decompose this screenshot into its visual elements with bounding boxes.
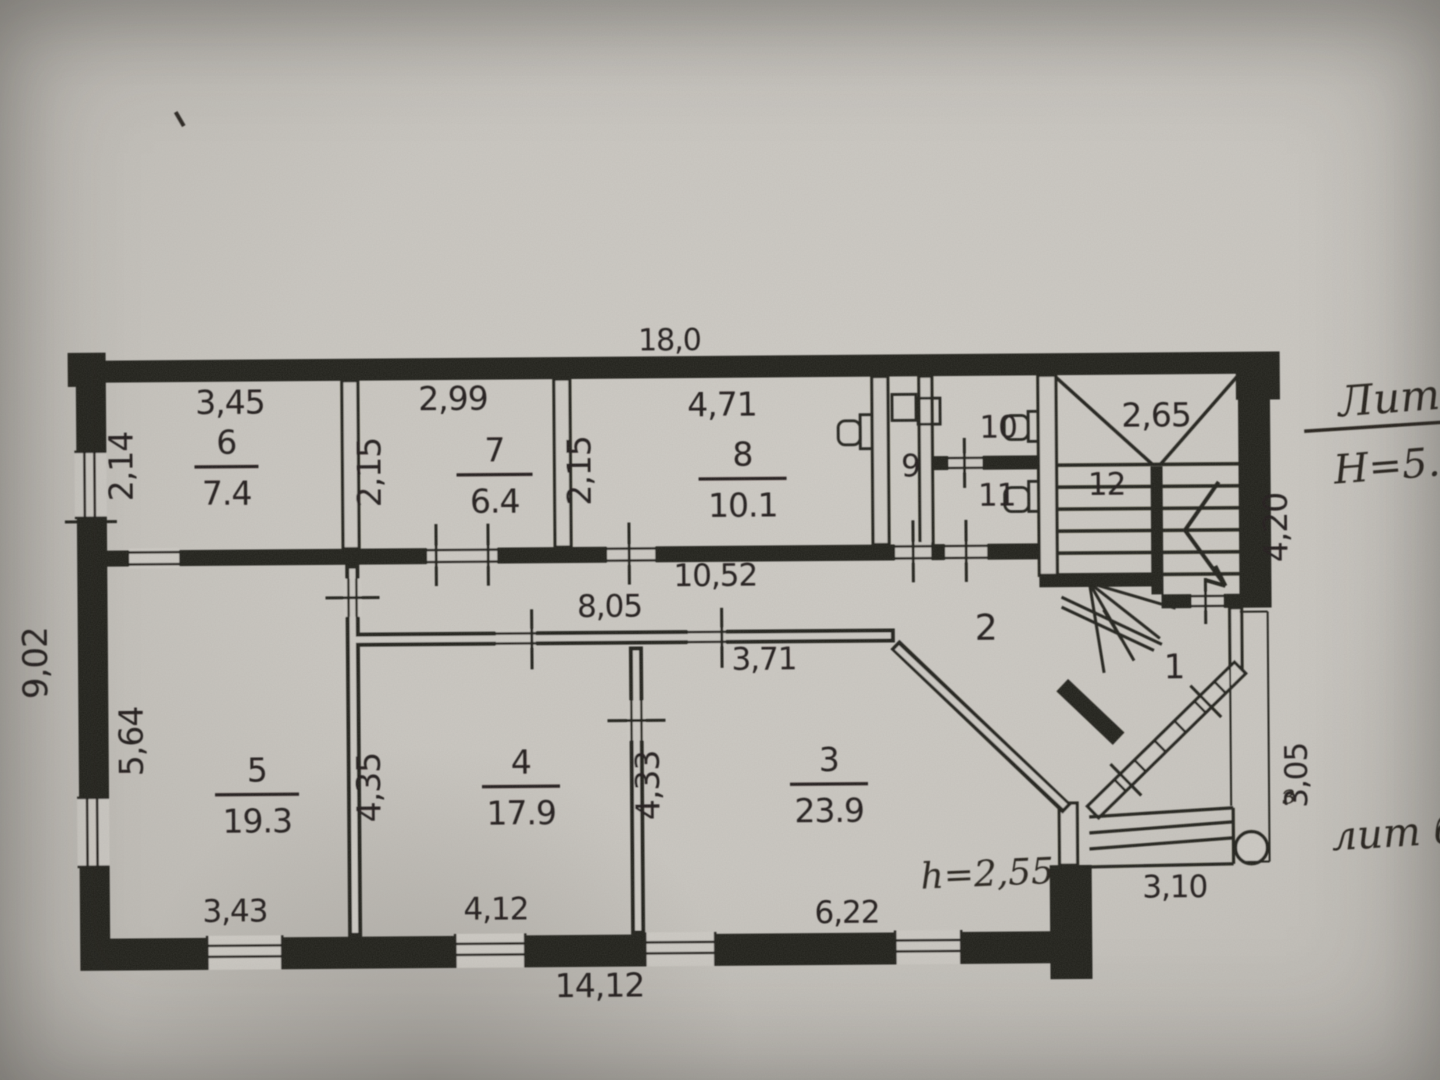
room-fraction-bar	[790, 784, 868, 785]
dimension-label: 4,20	[1256, 493, 1296, 563]
dimension-label: 10,52	[673, 558, 757, 595]
porch-ramp	[1089, 808, 1267, 867]
handwritten-note: Н=5.6	[1331, 437, 1440, 493]
room-number: 9	[901, 448, 920, 484]
room-area: 23.9	[794, 791, 864, 831]
wall-right	[1238, 356, 1272, 608]
dimension-label: 4,12	[463, 891, 528, 928]
sink-icon	[892, 394, 916, 420]
dimension-label: 6,22	[814, 895, 879, 932]
room-fraction-bar	[482, 786, 560, 787]
dimension-label: 9,02	[16, 627, 57, 699]
dimension-label: 3,45	[195, 382, 265, 422]
dimension-label: 4,35	[349, 753, 389, 823]
stair-treads	[1057, 486, 1240, 575]
room-fraction-bar	[699, 478, 787, 479]
landing-edge	[1056, 464, 1238, 465]
wall-room9-wc	[919, 376, 933, 544]
room-area: 6.4	[470, 481, 520, 520]
dimension-label: 2,14	[101, 432, 141, 502]
handwritten-note: Лит	[1334, 370, 1440, 427]
wall-wc-stairwell	[1038, 375, 1058, 575]
floor-plan-drawing: 18,03,452,994,712,652,142,152,1510,528,0…	[0, 0, 1440, 1080]
room-number: 12	[1088, 467, 1126, 503]
dimension-label: 5,64	[111, 707, 151, 777]
room-area: 10.1	[708, 485, 778, 525]
wall-room3-diagonal	[895, 643, 1067, 810]
toilet-icon	[838, 415, 872, 449]
room-number: 2	[975, 608, 997, 649]
dimension-label: 4,71	[687, 385, 757, 425]
labels-layer: 18,03,452,994,712,652,142,152,1510,528,0…	[13, 317, 1440, 1009]
room-area: 7.4	[202, 474, 252, 513]
room-area: 17.9	[486, 793, 556, 833]
wall-entrance-chunk	[1062, 685, 1118, 739]
handwritten-note: h=2,55	[920, 851, 1055, 898]
room-number: 8	[732, 435, 752, 474]
dimension-label: 2,65	[1121, 395, 1191, 435]
dimension-label: 2,99	[418, 379, 488, 419]
dimension-label: 8,05	[577, 588, 642, 625]
room-number: 5	[247, 750, 267, 789]
dimension-label: 14,12	[555, 965, 645, 1005]
dimension-label: 3,43	[202, 893, 267, 930]
room-number: 11	[978, 478, 1016, 514]
room-number: 7	[484, 431, 504, 470]
stair-direction-arrow	[1185, 482, 1226, 586]
scan-artifact	[176, 112, 184, 126]
room-fraction-bar	[215, 794, 299, 795]
handwritten-note: лит б	[1330, 807, 1440, 861]
room-fraction-bar	[457, 474, 533, 475]
floor-plan-photo: 18,03,452,994,712,652,142,152,1510,528,0…	[0, 0, 1440, 1080]
room-number: 1	[1164, 647, 1185, 687]
wall-pillar-bottom-right	[1050, 865, 1093, 979]
dimension-label: 4,33	[628, 751, 668, 821]
dimension-label: 2,15	[559, 436, 599, 506]
room-fraction-bar	[194, 466, 258, 467]
dimension-label: 3,71	[731, 641, 796, 678]
stair-stringer	[1150, 466, 1163, 594]
room-number: 3	[819, 740, 839, 779]
room-number: 4	[511, 742, 531, 781]
wall-room8-9	[872, 377, 889, 545]
dimension-label: 2,15	[349, 438, 389, 508]
porch-column	[1235, 832, 1267, 864]
room-number: 10	[979, 410, 1017, 446]
room-area: 19.3	[222, 801, 292, 841]
dimension-label: 3,10	[1142, 869, 1207, 906]
winder-stairs	[1061, 582, 1176, 673]
room-number: 6	[216, 423, 236, 462]
dimension-label: 18,0	[638, 323, 701, 358]
